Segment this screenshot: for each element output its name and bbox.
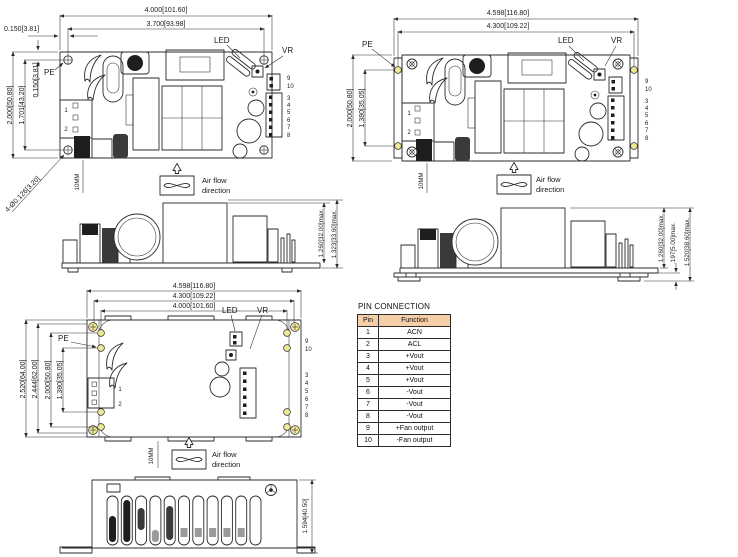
function-cell: ACN xyxy=(379,327,451,339)
pin-number: 10 xyxy=(645,87,652,93)
pin-number: 2 xyxy=(64,127,68,133)
clearance-label: 10MM xyxy=(419,173,425,190)
vr-label: VR xyxy=(611,36,622,45)
dim-height-inner-holes: 1.380[35.05] xyxy=(57,360,64,399)
pin-cell: 1 xyxy=(358,327,379,339)
pin-number: 3 xyxy=(305,373,309,379)
view-open-frame-side: 1.260[32.00]max. 1.323[33.60]max. xyxy=(62,200,343,272)
clearance-label: 10MM xyxy=(149,448,155,465)
pin-number: 1 xyxy=(64,108,68,114)
dim-height-components: 1.260[32.00]max. xyxy=(658,213,665,262)
function-cell: ACL xyxy=(379,339,451,351)
table-row: 5+Vout xyxy=(358,375,451,387)
pin-table-header-row: Pin Function xyxy=(358,315,451,327)
led-label: LED xyxy=(558,36,574,45)
pin-cell: 2 xyxy=(358,339,379,351)
pin-number: 5 xyxy=(645,113,649,119)
pe-label: PE xyxy=(58,334,69,343)
pin-number: 8 xyxy=(305,413,309,419)
pe-label: PE xyxy=(44,68,55,77)
pin-number: 10 xyxy=(305,347,312,353)
airflow-label: direction xyxy=(536,185,564,194)
pin-cell: 9 xyxy=(358,423,379,435)
pin-connection-table: Pin Function 1ACN 2ACL 3+Vout 4+Vout 5+V… xyxy=(357,314,451,447)
pin-number: 8 xyxy=(287,133,291,139)
pin-number: 1 xyxy=(407,111,411,117)
function-cell: +Vout xyxy=(379,375,451,387)
airflow-label: Air flow xyxy=(202,176,227,185)
function-cell: -Vout xyxy=(379,399,451,411)
pin-number: 9 xyxy=(645,79,649,85)
table-row: 1ACN xyxy=(358,327,451,339)
dim-height-outer: 2.000[50.80] xyxy=(347,88,354,127)
pin-number: 4 xyxy=(645,106,649,112)
airflow-label: Air flow xyxy=(536,175,561,184)
dim-width-holes: 4.300[109.22] xyxy=(487,23,530,30)
pin-cell: 7 xyxy=(358,399,379,411)
drawing-canvas: 4.000[101.60] 3.700[93.98] 0.150[3.81] 2… xyxy=(0,0,738,557)
pin-cell: 6 xyxy=(358,387,379,399)
dim-width-outer: 4.000[101.60] xyxy=(145,7,188,14)
pin-cell: 10 xyxy=(358,435,379,447)
pin-number: 6 xyxy=(645,121,649,127)
dim-height-total: 1.594[40.50] xyxy=(302,498,309,533)
function-cell: +Vout xyxy=(379,351,451,363)
view-covered-side: 1.594[40.50] xyxy=(60,477,318,553)
function-cell: +Vout xyxy=(379,363,451,375)
led-label: LED xyxy=(222,306,238,315)
table-row: 9+Fan output xyxy=(358,423,451,435)
dim-width-outer: 4.598[116.80] xyxy=(487,10,529,17)
pin-number: 7 xyxy=(305,405,309,411)
table-row: 8-Vout xyxy=(358,411,451,423)
pin-number: 3 xyxy=(645,99,649,105)
dim-height-total: 1.520[38.60]max. xyxy=(684,217,691,266)
mechanical-drawing-page: 4.000[101.60] 3.700[93.98] 0.150[3.81] 2… xyxy=(0,0,738,557)
pin-cell: 5 xyxy=(358,375,379,387)
dim-height-outer: 2.520[64.00] xyxy=(20,359,27,398)
pin-connection-section: PIN CONNECTION Pin Function 1ACN 2ACL 3+… xyxy=(357,302,477,447)
vent-slots xyxy=(107,496,261,545)
dim-x-offset: 0.150[3.81] xyxy=(4,26,39,33)
led-label: LED xyxy=(214,36,230,45)
airflow-label: Air flow xyxy=(212,450,237,459)
pin-number: 1 xyxy=(118,387,122,393)
pin-number: 7 xyxy=(645,128,649,134)
function-cell: +Fan output xyxy=(379,423,451,435)
dim-width-outer: 4.598[116.80] xyxy=(173,283,215,290)
table-row: 7-Vout xyxy=(358,399,451,411)
dim-height-flange: 2.444[62.00] xyxy=(32,359,39,398)
pin-number: 5 xyxy=(305,389,309,395)
pin-number: 5 xyxy=(287,110,291,116)
pin-number: 2 xyxy=(407,130,411,136)
pin-cell: 3 xyxy=(358,351,379,363)
pin-table-header-pin: Pin xyxy=(358,315,379,327)
view-covered-top: 4.598[116.80] 4.300[109.22] 4.000[101.60… xyxy=(20,283,312,469)
table-row: 4+Vout xyxy=(358,363,451,375)
pin-number: 9 xyxy=(305,339,309,345)
vr-label: VR xyxy=(257,306,268,315)
dim-holes-note: 4-Ø0.126[3.20] xyxy=(4,175,42,213)
pin-number: 7 xyxy=(287,125,291,131)
dim-height-holes: 1.380[35.05] xyxy=(359,88,366,127)
pin-number: 9 xyxy=(287,76,291,82)
table-row: 3+Vout xyxy=(358,351,451,363)
function-cell: -Vout xyxy=(379,387,451,399)
function-cell: -Vout xyxy=(379,411,451,423)
table-row: 10-Fan output xyxy=(358,435,451,447)
dim-width-holes: 4.300[109.22] xyxy=(173,293,216,300)
pin-number: 10 xyxy=(287,84,294,90)
pin-number: 4 xyxy=(305,381,309,387)
pin-cell: 4 xyxy=(358,363,379,375)
dim-height-holes: 2.000[50.80] xyxy=(45,360,52,399)
table-row: 2ACL xyxy=(358,339,451,351)
airflow-label: direction xyxy=(212,460,240,469)
dim-width-holes: 3.700[93.98] xyxy=(147,21,186,28)
clearance-label: 10MM xyxy=(75,174,81,191)
dim-height-standoff: .197[5.00]max. xyxy=(670,222,677,264)
view-open-frame-top: 4.000[101.60] 3.700[93.98] 0.150[3.81] 2… xyxy=(4,7,294,214)
dim-height-holes: 1.701[43.20] xyxy=(19,85,26,124)
pin-number: 6 xyxy=(287,118,291,124)
dim-height-total: 1.323[33.60]max. xyxy=(331,209,338,258)
function-cell: -Fan output xyxy=(379,435,451,447)
pin-number: 8 xyxy=(645,136,649,142)
vr-label: VR xyxy=(282,46,293,55)
pin-table-title: PIN CONNECTION xyxy=(358,302,477,311)
table-row: 6-Vout xyxy=(358,387,451,399)
view-bracket-side: 1.260[32.00]max. .197[5.00]max. 1.520[38… xyxy=(394,208,694,290)
pin-number: 6 xyxy=(305,397,309,403)
pe-label: PE xyxy=(362,40,373,49)
dim-width-inner-holes: 4.000[101.60] xyxy=(173,303,216,310)
pin-cell: 8 xyxy=(358,411,379,423)
airflow-label: direction xyxy=(202,186,230,195)
pin-number: 3 xyxy=(287,96,291,102)
cover-screw-icon xyxy=(266,485,277,496)
pin-table-header-function: Function xyxy=(379,315,451,327)
view-bracket-top: 4.598[116.80] 4.300[109.22] 2.000[50.80]… xyxy=(347,10,652,194)
dim-height-outer: 2.000[50.80] xyxy=(7,85,14,124)
pin-number: 2 xyxy=(118,402,122,408)
dim-y-offset: 0.150[3.81] xyxy=(33,62,40,97)
dim-height-components: 1.260[32.00]max. xyxy=(318,208,325,257)
pin-number: 4 xyxy=(287,103,291,109)
